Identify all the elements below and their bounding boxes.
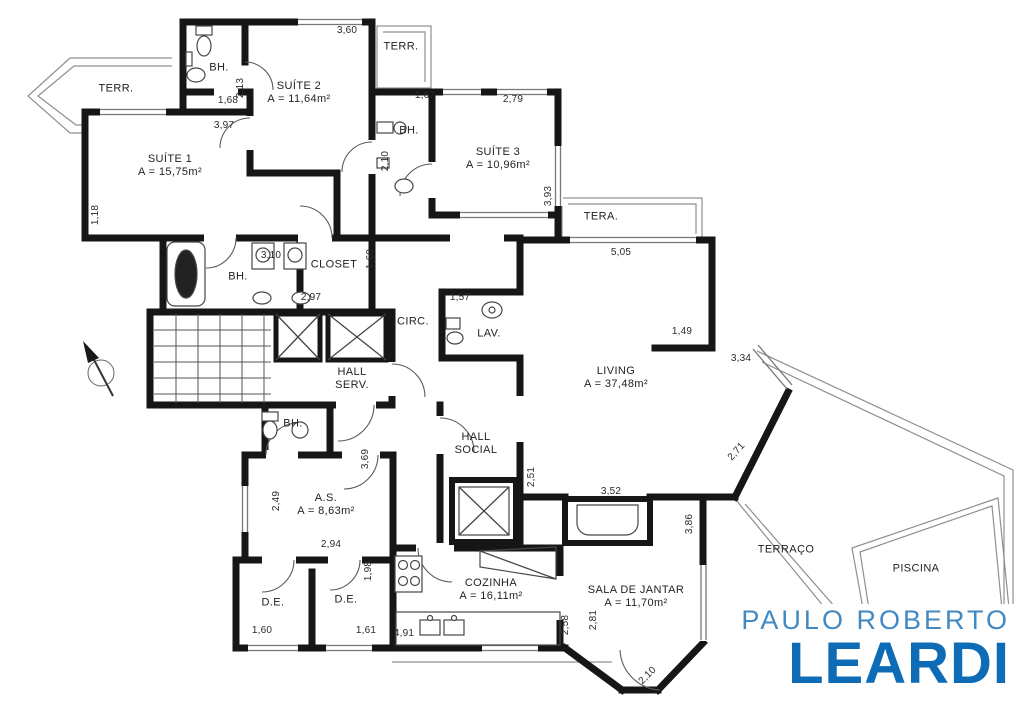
room-name: HALL: [335, 366, 369, 379]
room-label-piscina: PISCINA: [893, 562, 940, 575]
dim-hall-social-h: 2,51: [526, 467, 538, 487]
dim-banco-w: 3,52: [601, 486, 621, 498]
fixtures: [167, 26, 650, 645]
room-label-cozinha: COZINHA A = 16,11m²: [459, 577, 522, 603]
floor-plan: TERR. SUÍTE 1 A = 15,75m² BH. SUÍTE 2 A …: [0, 0, 1024, 701]
room-area: A = 16,11m²: [459, 590, 522, 603]
dim-de2-h: 1,98: [363, 561, 375, 581]
room-name: SALA DE JANTAR: [588, 584, 684, 597]
dim-de1-w: 1,60: [252, 625, 272, 637]
dim-living-right-w: 1,49: [672, 326, 692, 338]
room-label-as: A.S. A = 8,63m²: [297, 492, 355, 518]
room-label-terrace-nw: TERR.: [99, 82, 134, 95]
dim-bh-master-w2: 2,97: [301, 292, 321, 304]
dim-sala-h2: 2,81: [588, 610, 600, 630]
room-label-suite1: SUÍTE 1 A = 15,75m²: [138, 153, 202, 179]
stairs: [154, 314, 271, 403]
room-name: SERV.: [335, 379, 369, 392]
kitchen-sink: [420, 620, 440, 635]
room-label-circ: CIRC.: [397, 315, 429, 328]
room-label-sala-jantar: SALA DE JANTAR A = 11,70m²: [588, 584, 684, 610]
dim-suite2-w: 3,97: [214, 120, 234, 132]
room-label-de1: D.E.: [262, 596, 285, 609]
room-label-hall-serv: HALL SERV.: [335, 366, 369, 392]
dim-as-left-h: 2,49: [271, 491, 283, 511]
room-label-tera: TERA.: [584, 210, 618, 223]
room-label-hall-social: HALL SOCIAL: [455, 431, 498, 457]
dim-lav-w: 1,57: [450, 292, 470, 304]
room-label-bh-master: BH.: [228, 270, 248, 283]
dim-living-top: 5,05: [611, 247, 631, 259]
dim-as-right-h: 3,69: [360, 449, 372, 469]
dim-closet-h: 1,60: [365, 249, 377, 269]
dim-as-w: 2,94: [321, 539, 341, 551]
dim-suite3-w: 2,79: [503, 94, 523, 106]
room-area: A = 11,64m²: [267, 93, 330, 106]
kitchen-cabinet: [480, 547, 556, 579]
room-label-bh-suite2: BH.: [209, 61, 229, 74]
room-name: SUÍTE 2: [267, 80, 330, 93]
room-label-de2: D.E.: [335, 593, 358, 606]
room-label-bh-suite3: BH.: [399, 124, 419, 137]
dim-bh-suite2-h: 2,13: [235, 78, 247, 98]
room-label-terrace-top: TERR.: [384, 40, 419, 53]
dim-bh-suite3-w: 1,67: [415, 90, 435, 102]
room-area: A = 10,96m²: [466, 159, 530, 172]
room-name: COZINHA: [459, 577, 522, 590]
room-label-bh-as: BH.: [283, 417, 303, 430]
dim-sala-h1: 2,58: [560, 615, 572, 635]
room-name: A.S.: [297, 492, 355, 505]
dim-bh-master-w: 3,10: [261, 250, 281, 262]
dim-suite1-h: 1,18: [90, 205, 102, 225]
room-area: A = 15,75m²: [138, 166, 202, 179]
room-label-lav: LAV.: [477, 327, 501, 340]
logo-line-2: LEARDI: [741, 636, 1010, 691]
dim-suite3-h: 3,93: [543, 186, 555, 206]
room-name: SUÍTE 3: [466, 146, 530, 159]
room-area: A = 8,63m²: [297, 505, 355, 518]
room-label-suite3: SUÍTE 3 A = 10,96m²: [466, 146, 530, 172]
room-label-living: LIVING A = 37,48m²: [584, 365, 648, 391]
dim-suite2-top: 3,60: [337, 25, 357, 37]
room-name: HALL: [455, 431, 498, 444]
room-name: SOCIAL: [455, 444, 498, 457]
brand-logo: PAULO ROBERTO LEARDI: [731, 604, 1014, 695]
dim-bh-suite3-h: 2,10: [380, 151, 392, 171]
room-area: A = 11,70m²: [588, 597, 684, 610]
dim-cozinha-w: 4,91: [394, 628, 414, 640]
room-name: LIVING: [584, 365, 648, 378]
north-arrow-icon: [83, 341, 114, 396]
dim-sala-right-h: 3,86: [684, 514, 696, 534]
room-label-terraco: TERRAÇO: [758, 543, 815, 556]
kitchen-sink: [444, 620, 464, 635]
room-label-closet: CLOSET: [311, 258, 357, 271]
dim-de2-w: 1,61: [356, 625, 376, 637]
room-area: A = 37,48m²: [584, 378, 648, 391]
room-name: SUÍTE 1: [138, 153, 202, 166]
dim-living-right-w2: 3,34: [731, 353, 751, 365]
room-label-suite2: SUÍTE 2 A = 11,64m²: [267, 80, 330, 106]
